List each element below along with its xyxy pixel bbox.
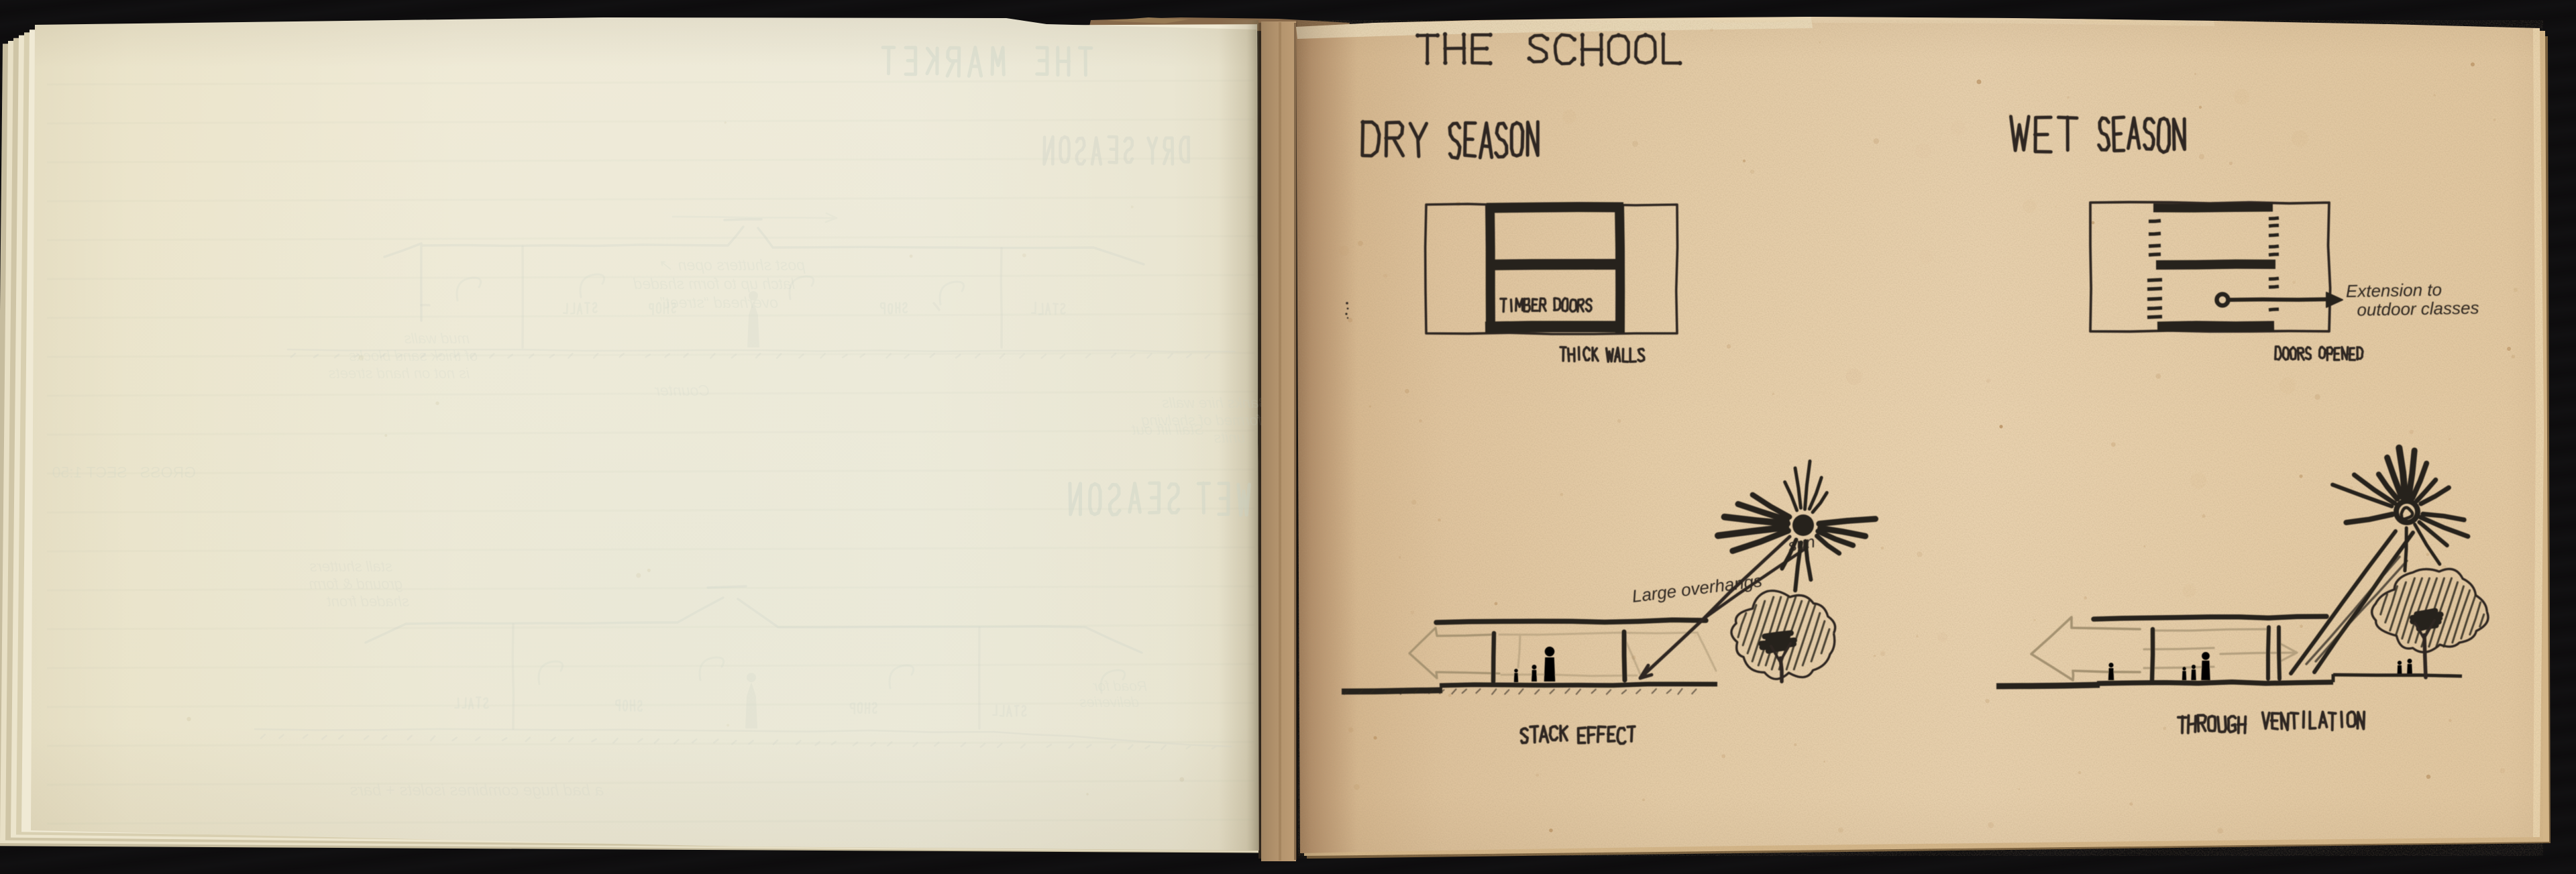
svg-text:of thick sand blocks: of thick sand blocks [349, 347, 478, 364]
svg-text:stall shutters: stall shutters [310, 558, 393, 575]
svg-text:overhead “street”: overhead “street” [660, 294, 778, 311]
svg-text:Banks hire walls: Banks hire walls [1162, 394, 1269, 411]
svg-text:ground & form: ground & form [309, 576, 402, 592]
svg-text:units: units [1214, 429, 1245, 446]
svg-text:is not on hand streets: is not on hand streets [329, 365, 470, 382]
svg-text:Stall lift out: Stall lift out [1132, 421, 1204, 438]
svg-text:shaded front: shaded front [327, 593, 409, 610]
svg-text:GROSS SECT 1:50: GROSS SECT 1:50 [52, 463, 196, 481]
svg-text:post shutters open ↗: post shutters open ↗ [660, 256, 806, 274]
svg-text:Counter: Counter [654, 382, 710, 399]
svg-text:latch up to form shaded: latch up to form shaded [633, 275, 795, 292]
svg-text:outdoor classes: outdoor classes [2357, 298, 2479, 320]
svg-text:mud walls: mud walls [404, 330, 470, 347]
svg-text:a bad huge combines isolets +: a bad huge combines isolets + bars [350, 781, 604, 800]
svg-text:Road for: Road for [1092, 679, 1147, 694]
svg-text:deliveries: deliveries [1079, 695, 1139, 710]
